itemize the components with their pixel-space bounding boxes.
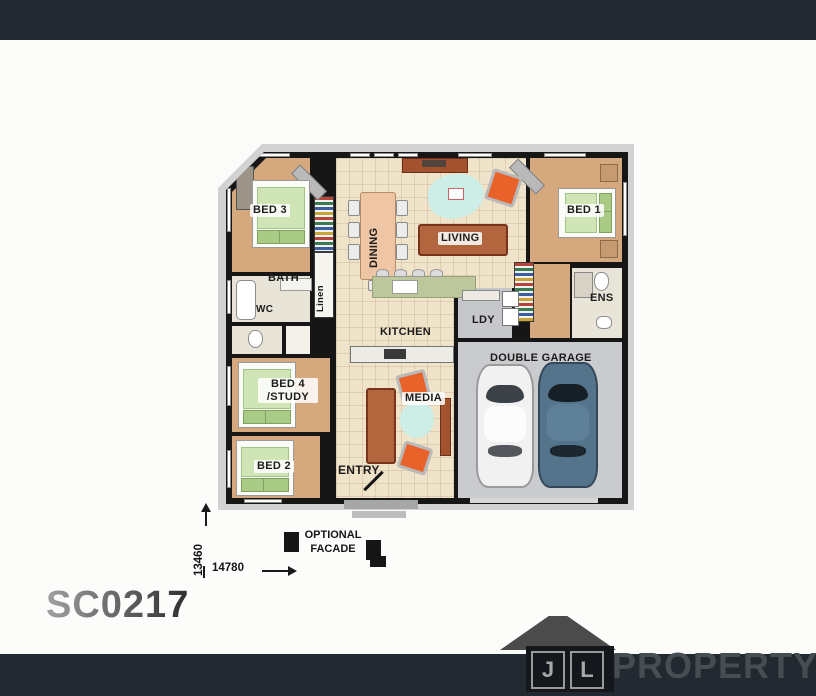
facade-line2: FACADE: [310, 543, 355, 555]
dimension-tick: [203, 566, 205, 578]
laundry-appliance: [502, 291, 519, 307]
floor-plan: BED 3 BATH WC Linen BED 4/STUDY BED 2 EN…: [226, 152, 628, 504]
room-label-wc: WC: [256, 304, 273, 316]
bed1-side-table: [600, 164, 618, 182]
bed4-line1: BED 4: [271, 378, 305, 390]
porch-pillar: [370, 556, 386, 567]
bathtub: [236, 280, 256, 320]
window: [374, 153, 394, 157]
logo-wordmark: PROPERTY: [612, 645, 816, 687]
cooktop: [384, 349, 406, 359]
room-label-bath: BATH: [268, 272, 299, 285]
porch-step: [344, 500, 418, 509]
width-arrow-line: [262, 570, 288, 572]
room-label-bed3: BED 3: [250, 204, 290, 217]
facade-line1: OPTIONAL: [305, 529, 362, 541]
media-console: [440, 398, 451, 456]
window: [227, 450, 231, 488]
room-label-linen: Linen: [316, 258, 327, 312]
wc-closet: [286, 326, 310, 354]
dining-chair: [348, 222, 360, 238]
room-label-ensuite: ENS: [590, 292, 614, 305]
bed1-side-table: [600, 240, 618, 258]
media-sofa: [366, 388, 396, 464]
logo-letter-j: J: [531, 651, 565, 689]
laundry-bench: [462, 290, 500, 301]
depth-arrow-icon: [201, 503, 211, 512]
window: [227, 366, 231, 406]
top-bar: [0, 0, 816, 40]
dining-chair: [348, 244, 360, 260]
window: [350, 153, 370, 157]
room-label-laundry: LDY: [472, 314, 495, 327]
dining-chair: [396, 200, 408, 216]
window: [244, 499, 282, 503]
dining-chair: [348, 200, 360, 216]
house-roof-icon: [500, 616, 616, 650]
kitchen-island: [372, 276, 476, 298]
room-label-bed1: BED 1: [564, 204, 604, 217]
room-label-living: LIVING: [438, 232, 482, 245]
optional-facade-label: OPTIONALFACADE: [294, 528, 372, 557]
window: [227, 280, 231, 314]
room-label-bed2: BED 2: [254, 460, 294, 473]
logo-letter-l: L: [570, 651, 604, 689]
dining-chair: [396, 222, 408, 238]
logo-monogram: J L: [526, 646, 614, 692]
window: [398, 153, 418, 157]
depth-arrow-line: [205, 512, 207, 526]
island-stool: [430, 269, 443, 277]
room-label-bed4-study: BED 4/STUDY: [258, 378, 318, 403]
window: [544, 153, 586, 157]
room-label-entry: ENTRY: [338, 464, 380, 478]
island-stool: [394, 269, 407, 277]
garage-door: [470, 498, 598, 503]
laundry-appliance: [502, 308, 519, 326]
tv: [422, 160, 446, 167]
ensuite-toilet: [594, 272, 609, 291]
bed3-robe: [314, 196, 334, 252]
coffee-table: [448, 188, 464, 200]
porch-step: [352, 511, 406, 518]
white-car: [476, 364, 534, 488]
window: [227, 188, 231, 232]
wc-toilet: [248, 330, 263, 348]
window: [623, 182, 627, 236]
room-label-garage: DOUBLE GARAGE: [490, 352, 592, 365]
window: [458, 153, 492, 157]
room-label-media: MEDIA: [402, 392, 445, 405]
dining-chair: [396, 244, 408, 260]
blue-car: [538, 362, 598, 488]
bed1-hallway: [530, 264, 570, 338]
island-stool: [376, 269, 389, 277]
kitchen-sink: [392, 280, 418, 294]
ensuite-basin: [596, 316, 612, 329]
bed4-line2: /STUDY: [267, 391, 309, 403]
dimension-width: 14780: [212, 562, 244, 574]
island-stool: [412, 269, 425, 277]
plan-code: SC0217: [46, 584, 189, 627]
floorplan-page: BED 3 BATH WC Linen BED 4/STUDY BED 2 EN…: [0, 0, 816, 696]
room-label-kitchen: KITCHEN: [380, 326, 431, 339]
width-arrow-icon: [288, 566, 297, 576]
room-label-dining: DINING: [368, 206, 381, 268]
